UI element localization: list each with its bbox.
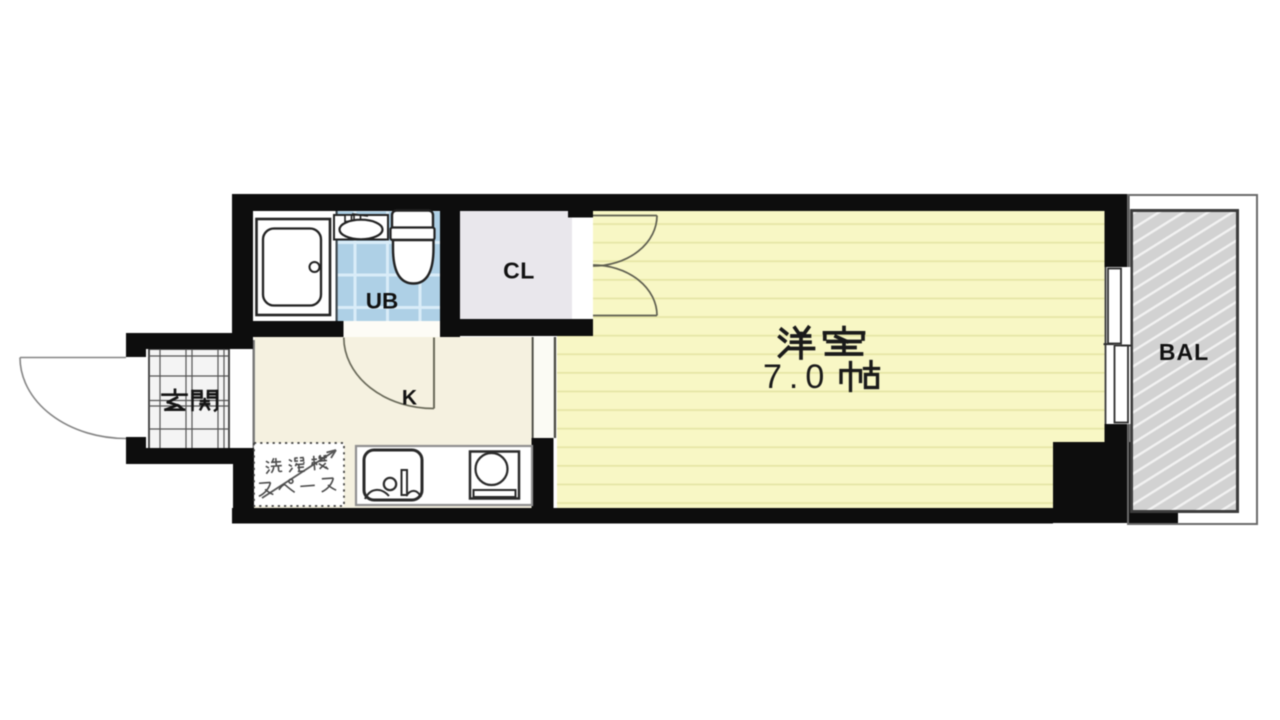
svg-text:CL: CL xyxy=(503,258,535,284)
svg-text:UB: UB xyxy=(366,289,399,314)
svg-text:K: K xyxy=(402,387,417,410)
svg-text:7.0: 7.0 xyxy=(763,358,831,396)
svg-text:BAL: BAL xyxy=(1159,339,1209,365)
